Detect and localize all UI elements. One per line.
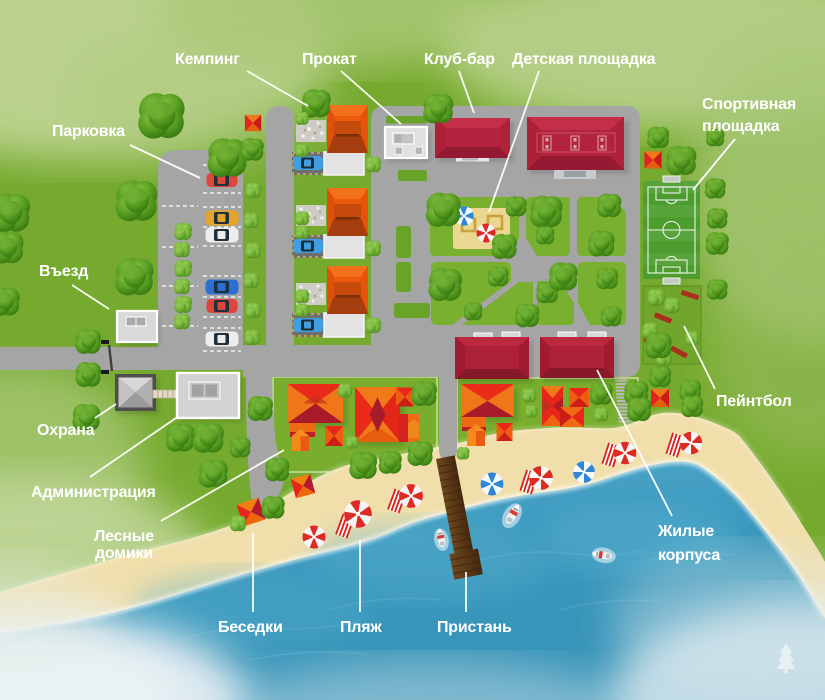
svg-text:Прокат: Прокат: [302, 51, 357, 68]
svg-text:Лесные: Лесные: [94, 528, 154, 545]
svg-text:Пляж: Пляж: [340, 619, 382, 636]
svg-text:Клуб-бар: Клуб-бар: [424, 51, 495, 68]
svg-text:Парковка: Парковка: [52, 123, 125, 140]
svg-text:площадка: площадка: [702, 118, 780, 135]
svg-text:Пристань: Пристань: [437, 619, 512, 636]
svg-text:Охрана: Охрана: [37, 422, 95, 439]
svg-text:Кемпинг: Кемпинг: [175, 51, 240, 68]
svg-text:Администрация: Администрация: [31, 484, 156, 501]
svg-text:Пейнтбол: Пейнтбол: [716, 393, 792, 410]
svg-text:Беседки: Беседки: [218, 619, 283, 636]
svg-text:Въезд: Въезд: [39, 263, 88, 280]
svg-text:Жилые: Жилые: [657, 523, 714, 540]
svg-text:Спортивная: Спортивная: [702, 96, 796, 113]
svg-text:Детская площадка: Детская площадка: [512, 51, 656, 68]
svg-text:домики: домики: [95, 545, 153, 562]
svg-text:корпуса: корпуса: [658, 547, 720, 564]
